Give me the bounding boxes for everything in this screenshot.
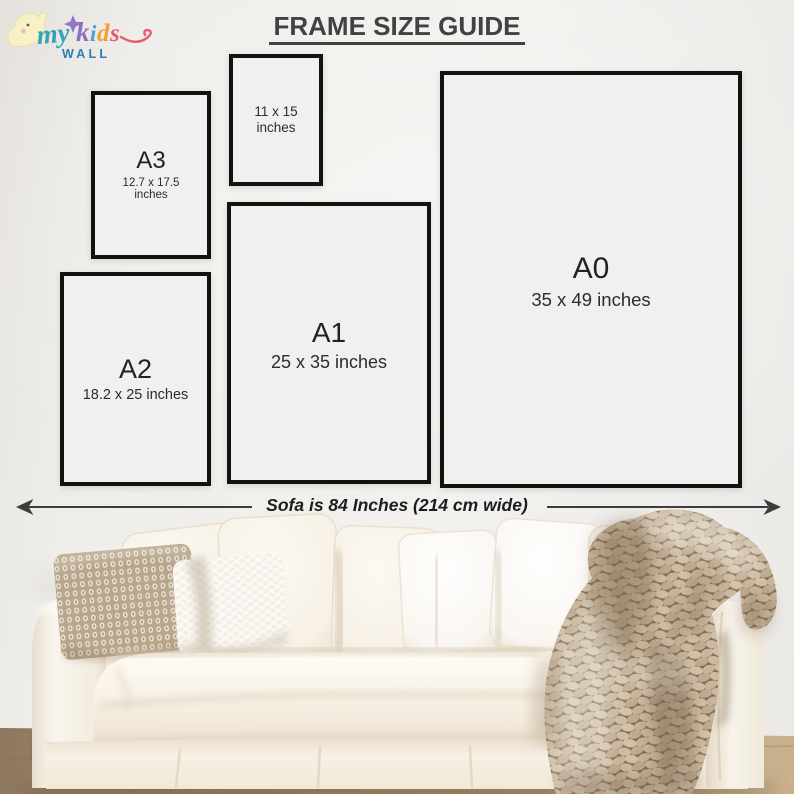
svg-text:WALL: WALL xyxy=(62,47,110,61)
